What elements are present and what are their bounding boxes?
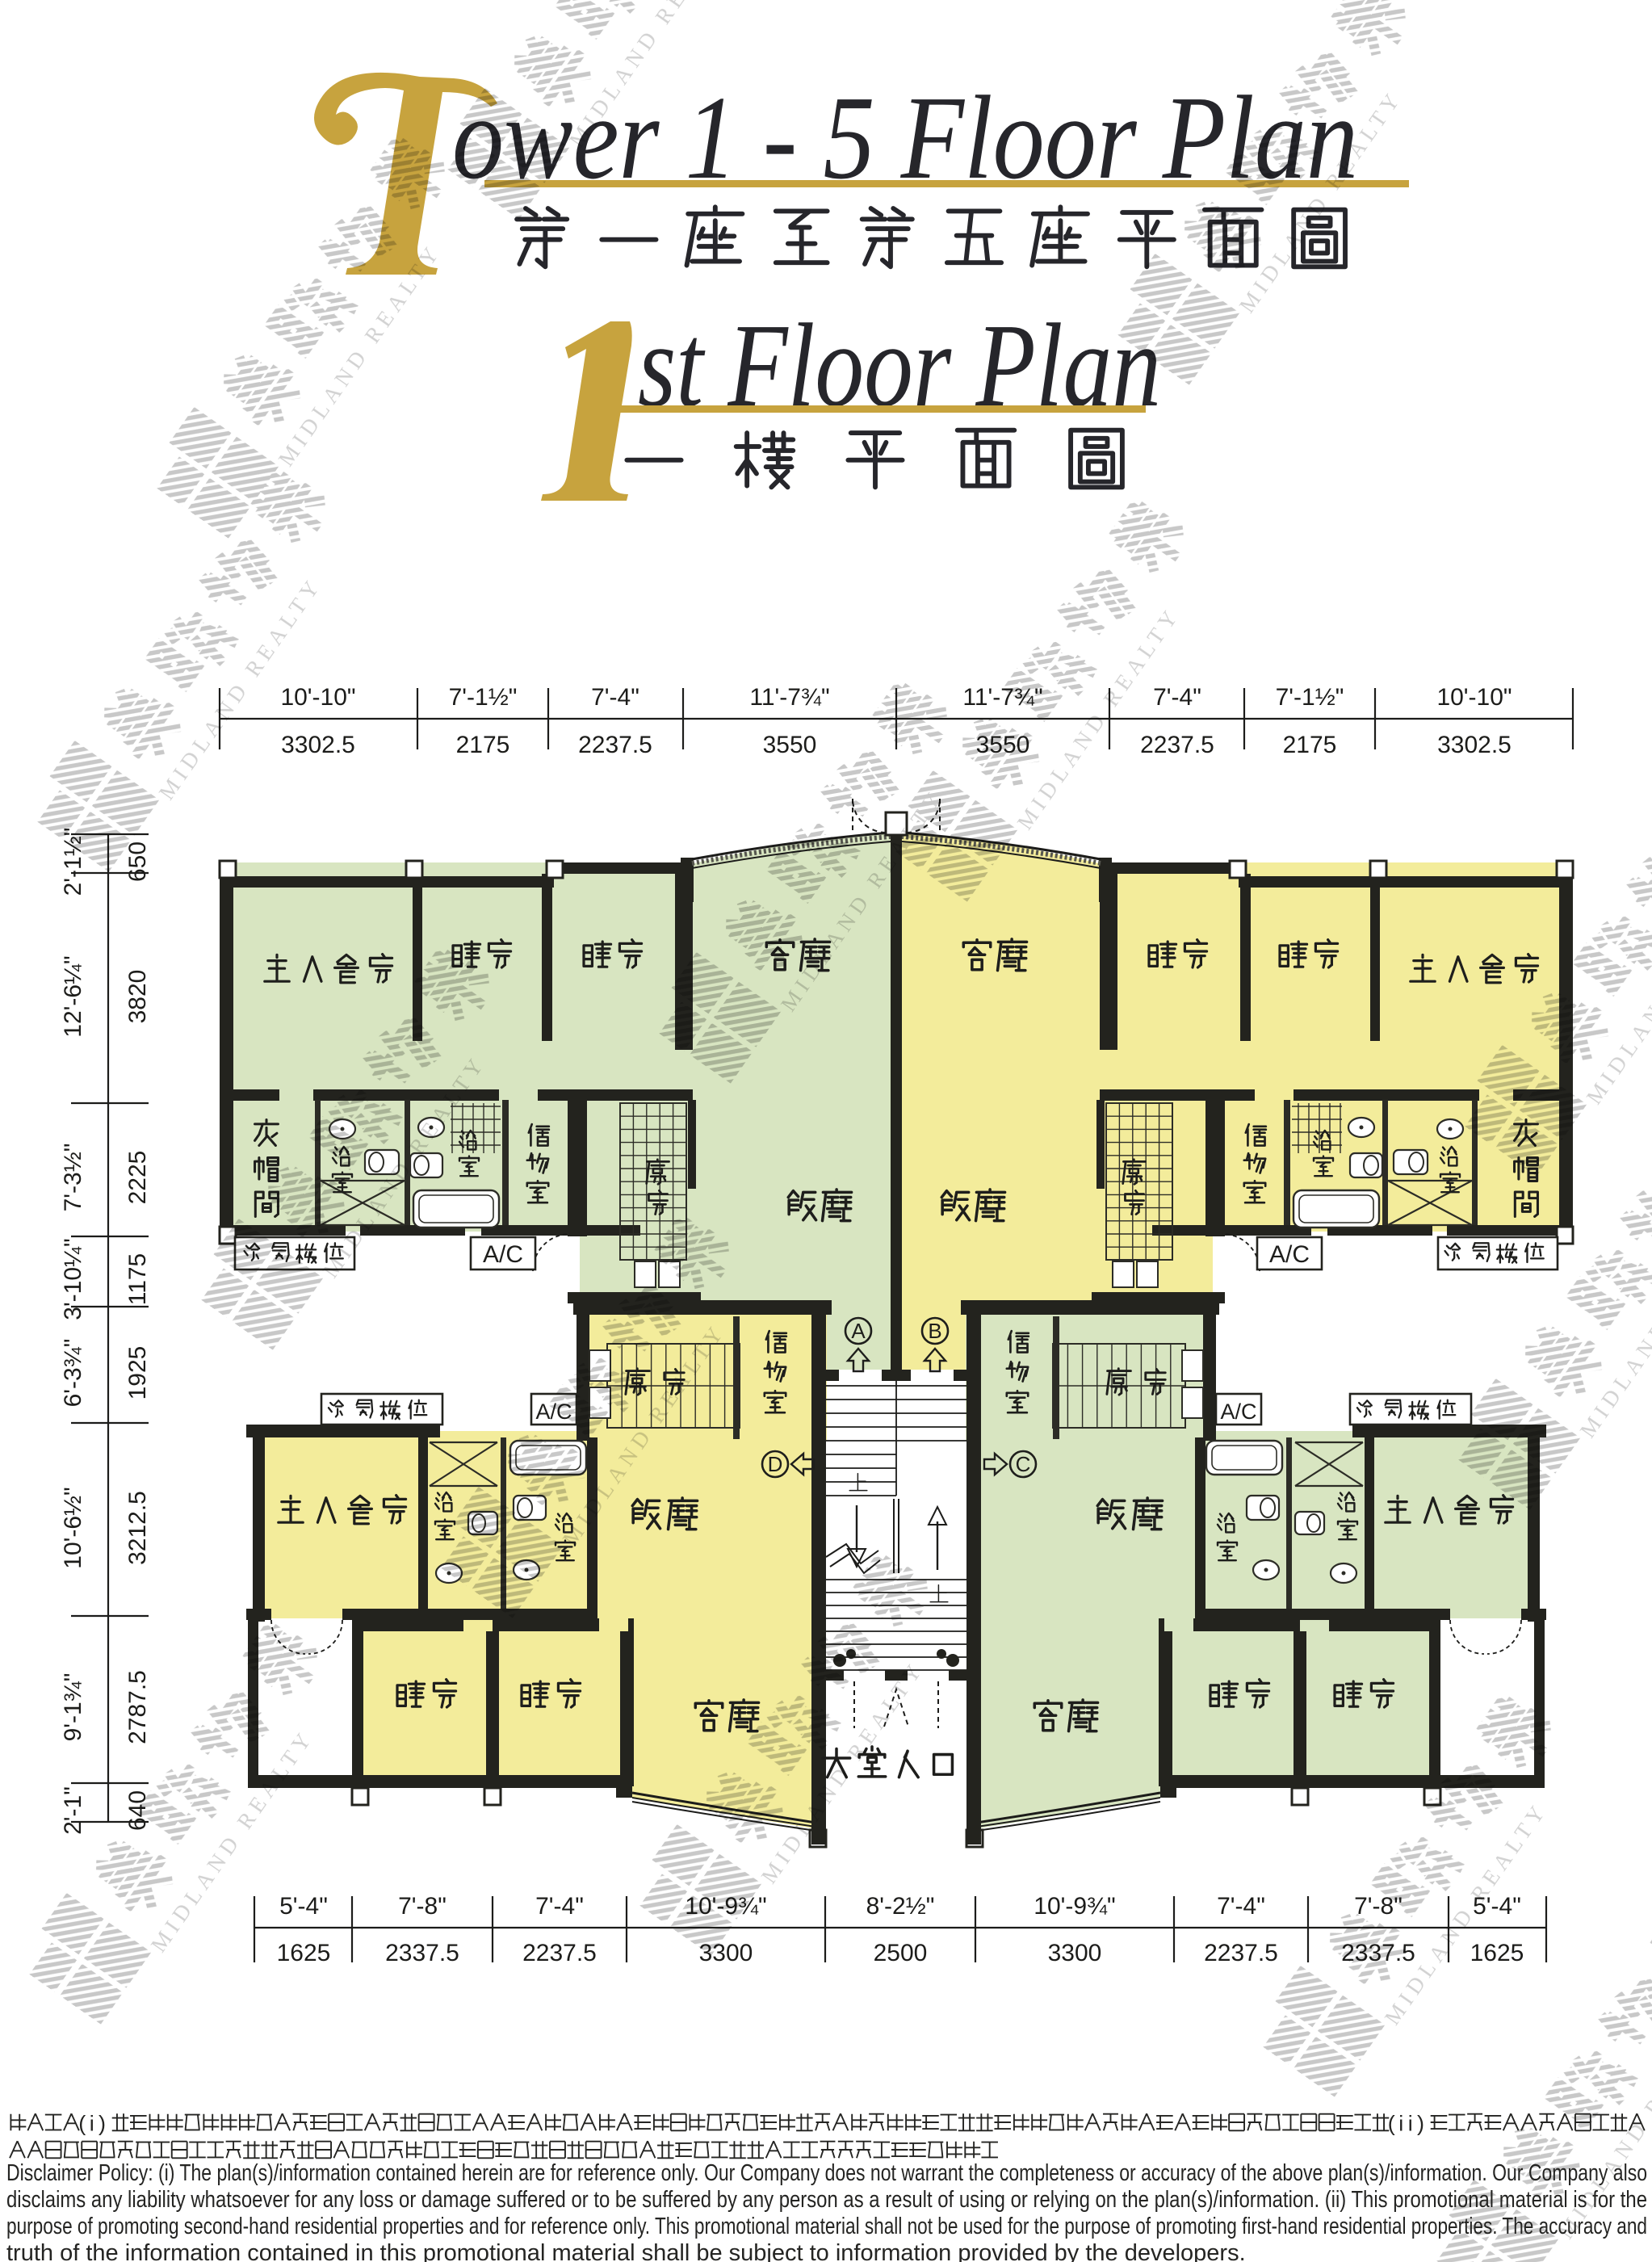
- svg-text:8'-2½": 8'-2½": [866, 1893, 935, 1920]
- svg-text:2237.5: 2237.5: [1140, 732, 1214, 758]
- svg-text:2500: 2500: [874, 1940, 928, 1966]
- svg-text:650: 650: [124, 841, 151, 882]
- svg-text:3'-10¼": 3'-10¼": [60, 1238, 86, 1320]
- svg-text:2787.5: 2787.5: [124, 1670, 151, 1744]
- svg-text:A/C: A/C: [1220, 1400, 1256, 1424]
- svg-text:9'-1¾": 9'-1¾": [60, 1673, 86, 1742]
- svg-text:B: B: [928, 1319, 941, 1343]
- svg-text:D: D: [768, 1452, 783, 1476]
- svg-text:(: (: [78, 2111, 86, 2135]
- svg-text:7'-8": 7'-8": [398, 1893, 447, 1920]
- svg-text:Disclaimer Policy: (i) The pla: Disclaimer Policy: (i) The plan(s)/infor…: [6, 2160, 1647, 2186]
- svg-text:3302.5: 3302.5: [281, 732, 355, 758]
- svg-text:1925: 1925: [124, 1346, 151, 1400]
- svg-text:2337.5: 2337.5: [385, 1940, 459, 1966]
- svg-text:): ): [99, 2111, 106, 2135]
- svg-text:10'-6½": 10'-6½": [60, 1487, 86, 1568]
- svg-text:2237.5: 2237.5: [578, 732, 652, 758]
- svg-text:(: (: [1388, 2111, 1395, 2135]
- svg-text:C: C: [1016, 1452, 1031, 1476]
- svg-text:7'-1½": 7'-1½": [1276, 684, 1344, 711]
- svg-text:7'-4": 7'-4": [1153, 684, 1201, 711]
- svg-text:7'-3½": 7'-3½": [60, 1144, 86, 1212]
- svg-text:3302.5: 3302.5: [1437, 732, 1512, 758]
- svg-text:7'-4": 7'-4": [535, 1893, 584, 1920]
- svg-text:10'-10": 10'-10": [280, 684, 355, 711]
- svg-text:7'-1½": 7'-1½": [449, 684, 518, 711]
- svg-text:12'-6¼": 12'-6¼": [60, 955, 86, 1037]
- svg-text:A/C: A/C: [483, 1241, 523, 1268]
- svg-text:i: i: [1408, 2111, 1413, 2135]
- svg-text:2175: 2175: [456, 732, 510, 758]
- svg-text:A/C: A/C: [1269, 1241, 1310, 1268]
- svg-text:2175: 2175: [1283, 732, 1337, 758]
- svg-text:1625: 1625: [277, 1940, 331, 1966]
- svg-text:3300: 3300: [1048, 1940, 1102, 1966]
- svg-text:2'-1": 2'-1": [60, 1786, 86, 1835]
- svg-text:3212.5: 3212.5: [124, 1491, 151, 1565]
- svg-text:7'-4": 7'-4": [591, 684, 639, 711]
- svg-text:i: i: [1398, 2111, 1403, 2135]
- svg-text:6'-3¾": 6'-3¾": [60, 1339, 86, 1408]
- svg-text:10'-10": 10'-10": [1436, 684, 1512, 711]
- svg-text:A: A: [851, 1319, 866, 1343]
- svg-text:disclaims any liability whatso: disclaims any liability whatsoever for a…: [6, 2187, 1647, 2213]
- svg-text:11'-7¾": 11'-7¾": [749, 684, 829, 711]
- svg-text:truth of the information conta: truth of the information contained in th…: [6, 2240, 1246, 2262]
- svg-text:1175: 1175: [124, 1253, 151, 1306]
- svg-text:purpose of promoting second-ha: purpose of promoting second-hand residen…: [6, 2214, 1647, 2239]
- svg-text:10'-9¾": 10'-9¾": [1034, 1893, 1115, 1920]
- svg-text:2237.5: 2237.5: [1204, 1940, 1278, 1966]
- svg-text:1625: 1625: [1470, 1940, 1524, 1966]
- svg-text:i: i: [90, 2111, 94, 2135]
- svg-text:): ): [1417, 2111, 1424, 2135]
- svg-text:2237.5: 2237.5: [522, 1940, 597, 1966]
- svg-text:7'-4": 7'-4": [1217, 1893, 1265, 1920]
- svg-text:2225: 2225: [124, 1151, 151, 1205]
- svg-text:3550: 3550: [763, 732, 817, 758]
- svg-text:5'-4": 5'-4": [279, 1893, 328, 1920]
- svg-text:3820: 3820: [124, 970, 151, 1024]
